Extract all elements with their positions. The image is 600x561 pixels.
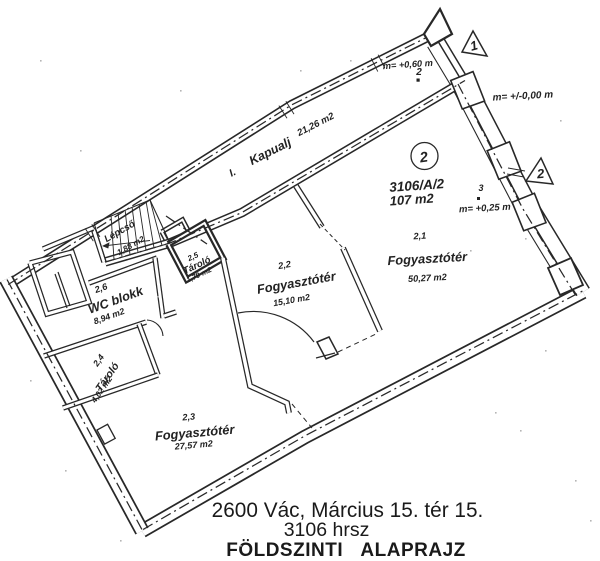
svg-text:2,3: 2,3 bbox=[181, 411, 196, 422]
svg-text:2,1: 2,1 bbox=[412, 231, 426, 242]
svg-text:2: 2 bbox=[415, 67, 422, 78]
svg-text:3: 3 bbox=[478, 183, 483, 193]
svg-text:107 m2: 107 m2 bbox=[389, 190, 435, 208]
svg-text:FÖLDSZINTI ALAPRAJZ: FÖLDSZINTI ALAPRAJZ bbox=[226, 540, 466, 561]
svg-text:3106 hrsz: 3106 hrsz bbox=[284, 519, 370, 541]
svg-text:50,27 m2: 50,27 m2 bbox=[408, 272, 448, 284]
